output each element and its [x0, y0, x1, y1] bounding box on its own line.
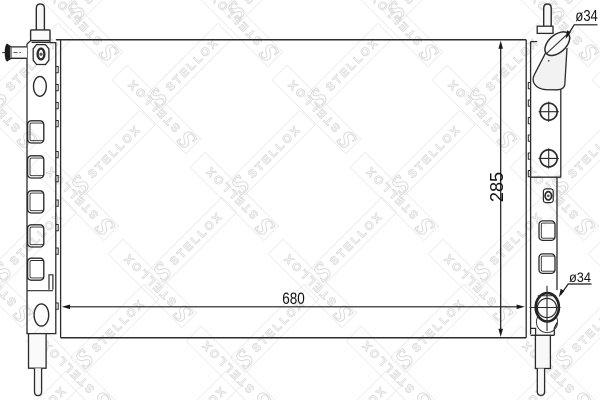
svg-text:ø34: ø34	[569, 269, 591, 285]
svg-text:680: 680	[282, 290, 305, 309]
svg-text:285: 285	[486, 172, 507, 202]
svg-text:ø34: ø34	[575, 8, 597, 25]
